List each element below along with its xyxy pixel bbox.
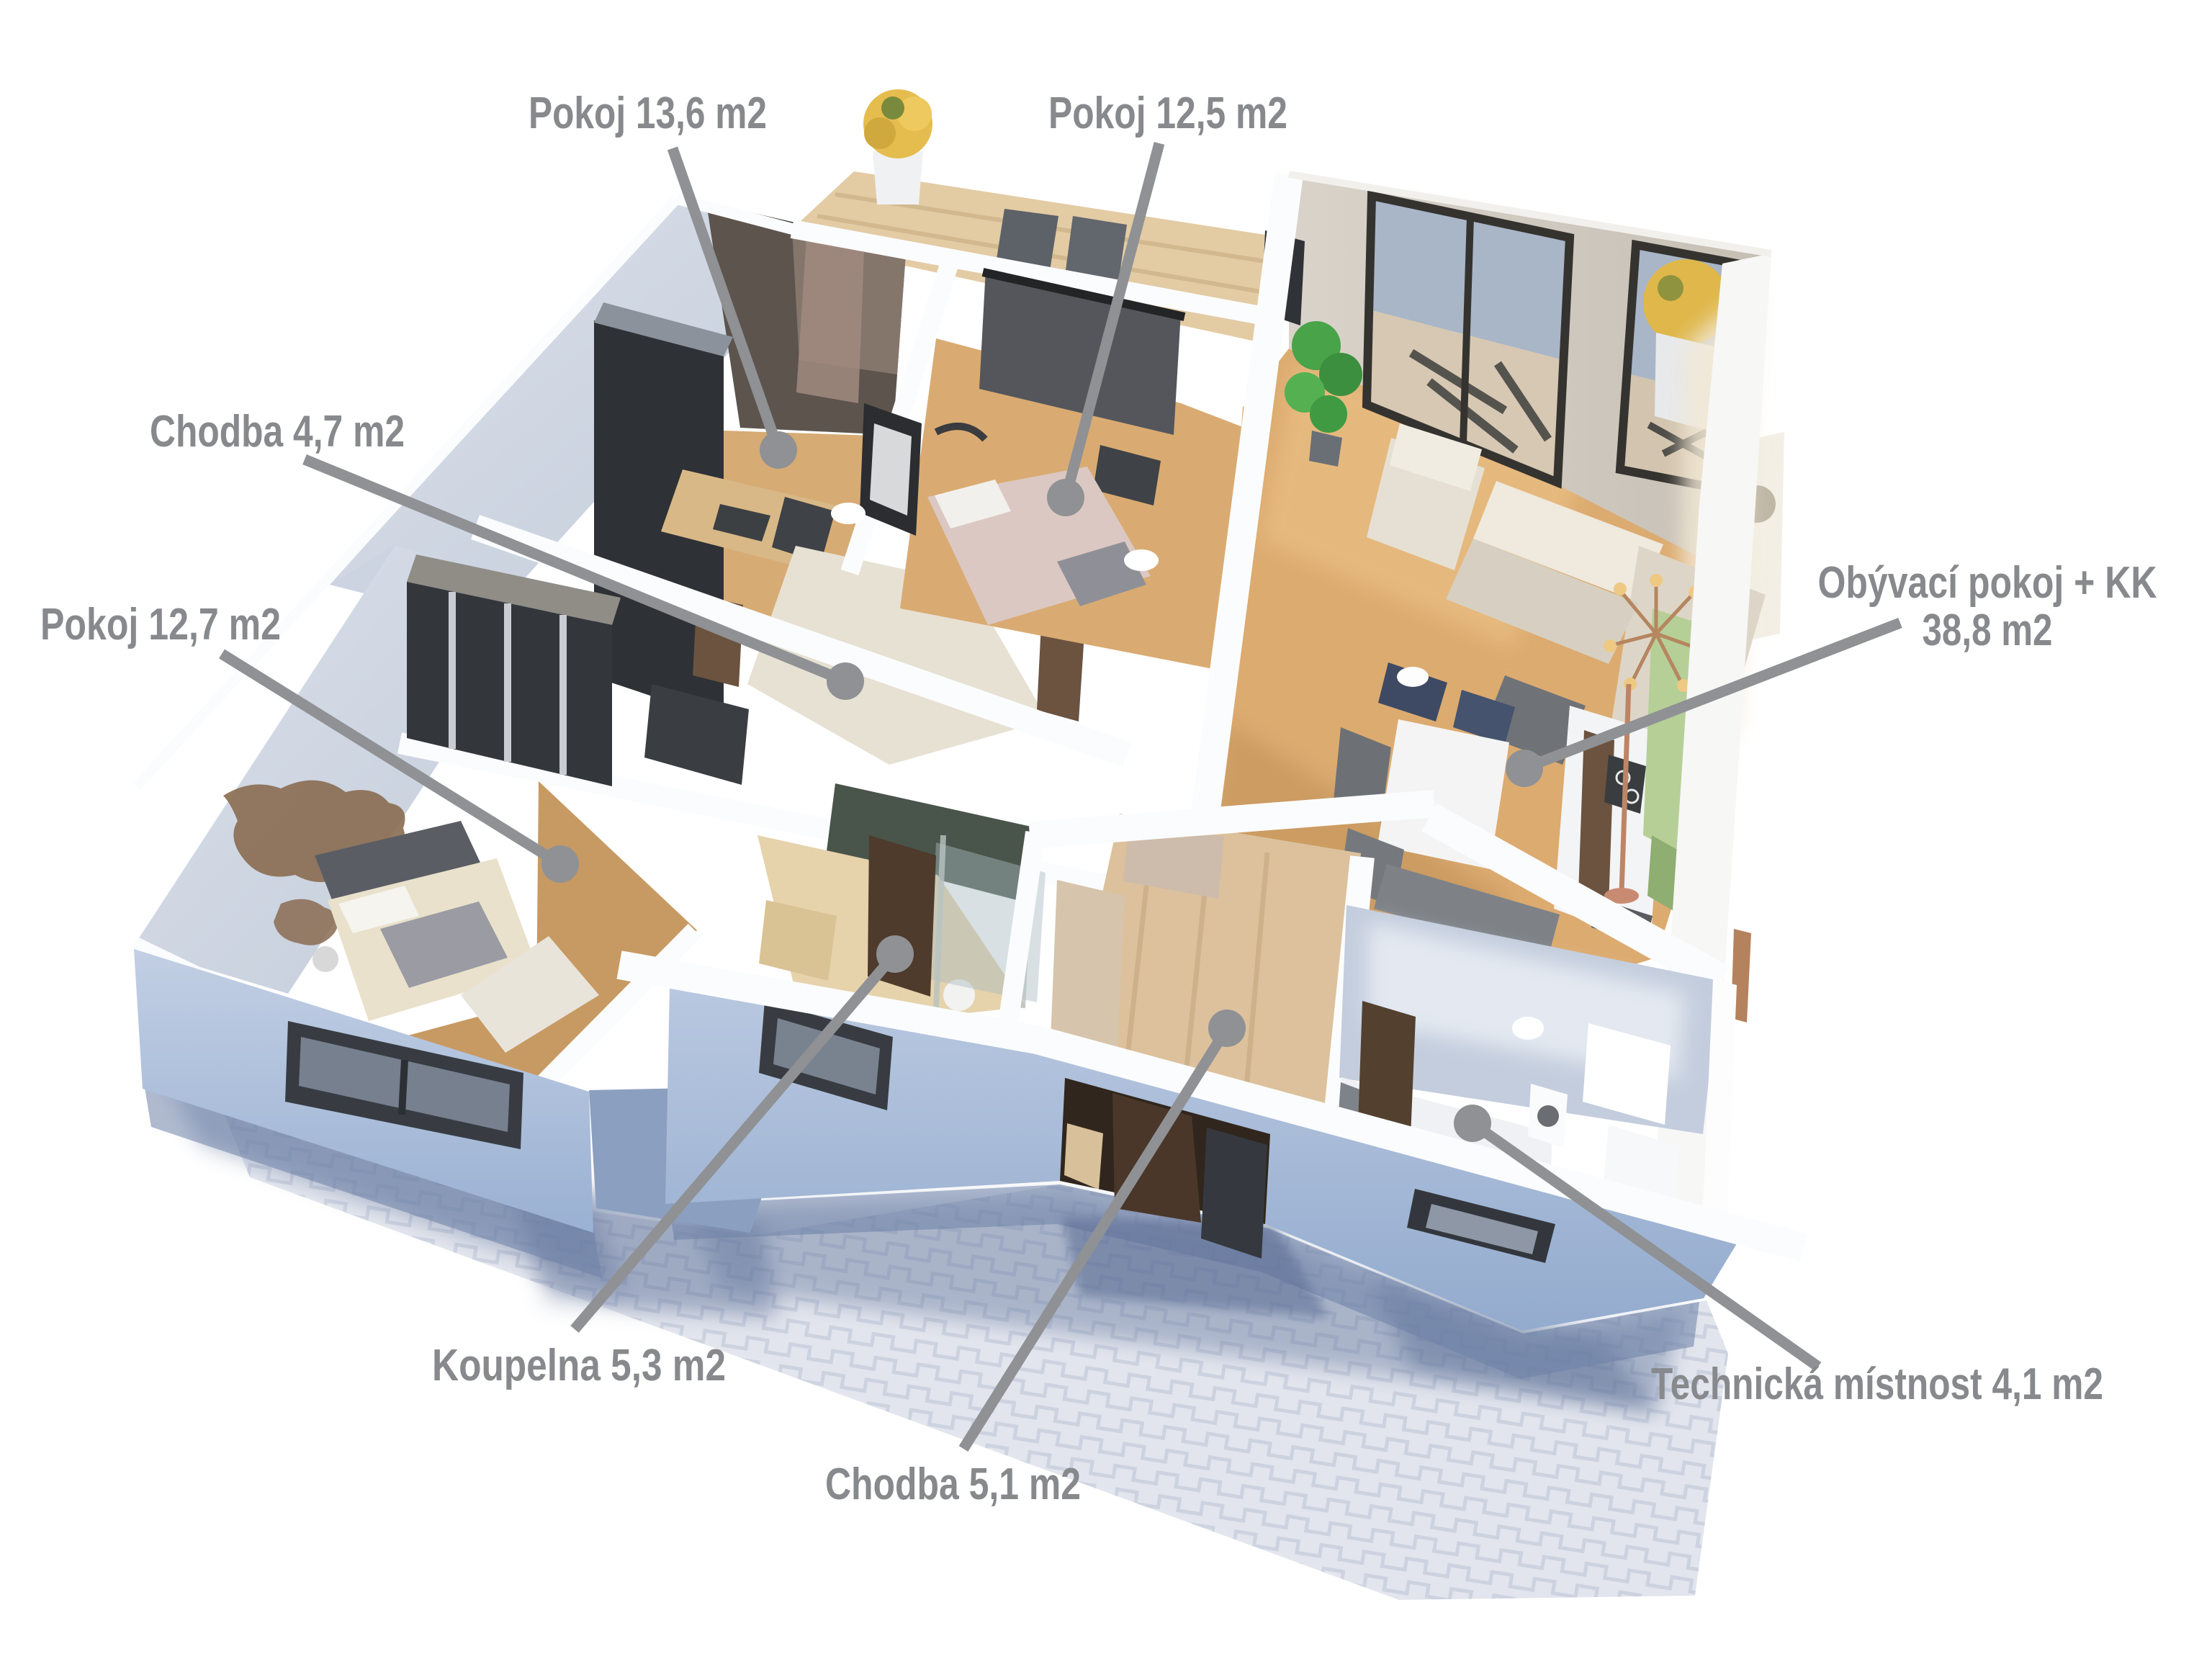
svg-text:Koupelna 5,3 m2: Koupelna 5,3 m2 [432,1341,726,1390]
svg-text:Pokoj 12,5 m2: Pokoj 12,5 m2 [1048,89,1287,138]
svg-text:Obývací pokoj + KK: Obývací pokoj + KK [1818,558,2157,608]
svg-text:38,8 m2: 38,8 m2 [1923,606,2053,655]
svg-text:Technická místnost 4,1 m2: Technická místnost 4,1 m2 [1651,1359,2103,1409]
svg-text:Pokoj 12,7 m2: Pokoj 12,7 m2 [40,600,281,649]
svg-text:Chodba 5,1 m2: Chodba 5,1 m2 [825,1460,1081,1509]
svg-text:Chodba 4,7 m2: Chodba 4,7 m2 [150,407,405,457]
svg-text:Pokoj 13,6 m2: Pokoj 13,6 m2 [529,89,767,138]
